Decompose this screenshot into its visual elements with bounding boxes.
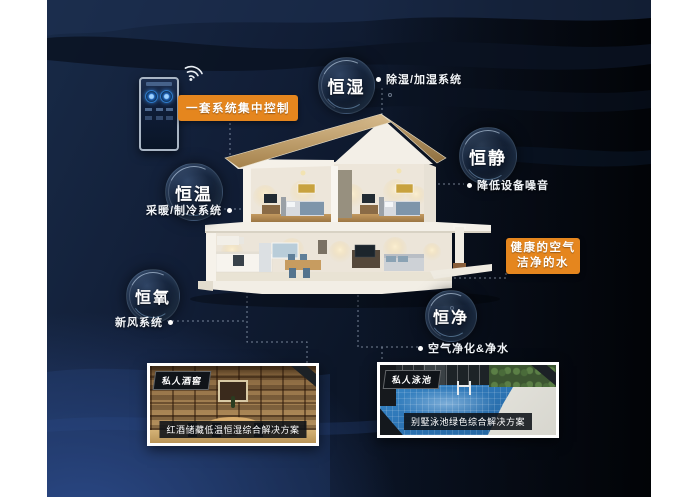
wine-cellar-caption: 红酒储藏低温恒湿综合解决方案 [159, 421, 306, 438]
dial-icon [160, 90, 173, 103]
desc-text: 降低设备噪音 [477, 177, 549, 193]
desc-air-water-purification: 空气净化&净水 [418, 340, 509, 356]
wine-cellar-tag: 私人酒窖 [153, 371, 212, 390]
healthy-air-water-callout: 健康的空气 洁净的水 [506, 238, 580, 274]
dial-icon [145, 90, 158, 103]
pool-photo: 私人泳池 别墅泳池绿色综合解决方案 [380, 365, 556, 435]
panel-buttons [145, 116, 173, 120]
house-body [198, 114, 492, 294]
panel-readouts [145, 108, 173, 111]
healthy-air-line: 健康的空气 [506, 241, 580, 256]
connector-dot [376, 77, 381, 82]
pool-caption: 别墅泳池绿色综合解决方案 [404, 413, 532, 430]
bubble-constant-purity: 恒净 [425, 290, 477, 342]
bubble-constant-humidity: 恒湿 [318, 57, 375, 114]
desc-humidity-system: 除湿/加湿系统 [376, 71, 462, 87]
pool-card: 私人泳池 别墅泳池绿色综合解决方案 [377, 362, 559, 438]
wine-cellar-photo: 私人酒窖 红酒储藏低温恒湿综合解决方案 [150, 366, 316, 443]
tiny-bubble [389, 94, 392, 97]
desc-text: 空气净化&净水 [428, 340, 509, 356]
wine-bottle [231, 396, 235, 408]
connector-dot [467, 183, 472, 188]
corner-ribbon [286, 366, 316, 390]
desc-text: 除湿/加湿系统 [386, 71, 462, 87]
pool-tag: 私人泳池 [383, 370, 442, 389]
desc-heating-cooling: 采暖/制冷系统 [146, 202, 232, 218]
central-control-callout: 一套系统集中控制 [178, 95, 298, 121]
clean-water-line: 洁净的水 [506, 256, 580, 271]
panel-dials [144, 90, 174, 103]
connector-dot [227, 208, 232, 213]
connector-dot [168, 320, 173, 325]
control-panel-device [139, 77, 179, 151]
desc-fresh-air: 新风系统 [115, 314, 173, 330]
desc-text: 采暖/制冷系统 [146, 202, 222, 218]
wine-cellar-card: 私人酒窖 红酒储藏低温恒湿综合解决方案 [147, 363, 319, 446]
connector-dot [418, 346, 423, 351]
desc-noise-reduction: 降低设备噪音 [467, 177, 549, 193]
desc-text: 新风系统 [115, 314, 163, 330]
infographic-canvas: 一套系统集中控制 健康的空气 洁净的水 恒湿 恒静 恒温 恒氧 恒净 除湿/加湿… [0, 0, 700, 497]
pool-ladder-icon [457, 381, 471, 395]
panel-header [146, 82, 172, 86]
